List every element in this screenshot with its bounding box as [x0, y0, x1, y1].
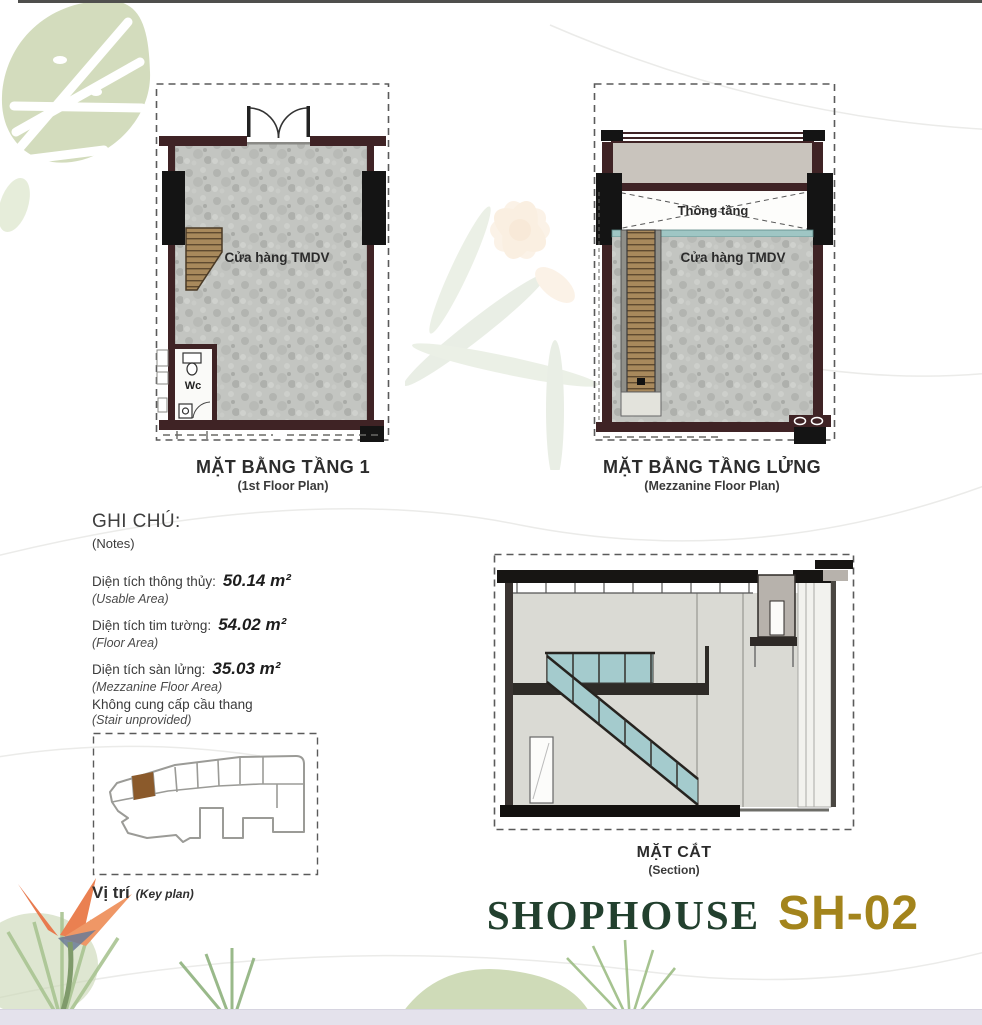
note-extra-sub: (Stair unprovided): [92, 713, 422, 727]
section-title: MẶT CẮT: [493, 844, 855, 862]
plan1-caption: MẶT BẰNG TẦNG 1 (1st Floor Plan): [133, 457, 433, 493]
plan2-caption: MẶT BẰNG TẦNG LỬNG (Mezzanine Floor Plan…: [562, 457, 862, 493]
keyplan-highlighted-unit: [132, 772, 155, 800]
wc-label: Wc: [185, 380, 202, 392]
void-label: Thông tầng: [678, 203, 749, 218]
monstera-leaf-decoration: [0, 0, 170, 235]
notes-heading-sub: (Notes): [92, 536, 422, 551]
plan1-title: MẶT BẰNG TẦNG 1: [133, 457, 433, 478]
section-door: [530, 737, 553, 803]
unit-code: SH-02: [778, 886, 919, 941]
adjacent-fixtures: [157, 350, 168, 412]
mezzanine-slab: [513, 683, 709, 695]
first-floor-plan: Cửa hàng TMDV Wc: [155, 82, 390, 454]
note-extra-line: Không cung cấp cầu thang: [92, 697, 422, 712]
footer-bar: [0, 1009, 982, 1025]
sink-icon: [179, 404, 192, 418]
notes-block: GHI CHÚ: (Notes) Diện tích thông thủy:50…: [92, 511, 422, 736]
section-caption: MẶT CẮT (Section): [493, 844, 855, 877]
plan2-subtitle: (Mezzanine Floor Plan): [562, 479, 862, 493]
plan2-room-label: Cửa hàng TMDV: [680, 250, 785, 265]
wc-room: Wc: [170, 344, 217, 420]
section-roof-beam: [497, 570, 758, 583]
note-item-floor-area: Diện tích tim tường:54.02 m² (Floor Area…: [92, 615, 422, 650]
shophouse-title: SHOPHOUSE: [487, 891, 760, 939]
top-rule: [18, 0, 982, 3]
section-floor-beam: [500, 805, 740, 817]
notes-heading: GHI CHÚ:: [92, 511, 422, 533]
plan2-vent-block: [789, 415, 831, 444]
plan1-room-label: Cửa hàng TMDV: [224, 250, 329, 265]
plan2-upper-band: [612, 142, 813, 184]
note-item-mezzanine-area: Diện tích sàn lửng:35.03 m² (Mezzanine F…: [92, 659, 422, 727]
note-item-usable-area: Diện tích thông thủy:50.14 m² (Usable Ar…: [92, 571, 422, 606]
section-interior: [513, 593, 798, 807]
key-plan: [92, 732, 320, 877]
keyplan-label: Vị trí(Key plan): [92, 883, 194, 903]
section-subtitle: (Section): [493, 863, 855, 877]
plan2-title: MẶT BẰNG TẦNG LỬNG: [562, 457, 862, 478]
plan1-column-right: [362, 171, 386, 245]
section-drawing: [493, 553, 855, 831]
plan1-subtitle: (1st Floor Plan): [133, 479, 433, 493]
section-left-wall: [505, 583, 513, 807]
project-title: SHOPHOUSE SH-02: [468, 886, 938, 941]
plan1-column-left: [162, 171, 185, 245]
double-door-swing: [247, 106, 310, 138]
plan1-bottom-block: [360, 426, 384, 442]
plan2-stair: [621, 230, 661, 416]
mezzanine-floor-plan: Thông tầng Cửa hàng TMDV: [593, 82, 836, 454]
